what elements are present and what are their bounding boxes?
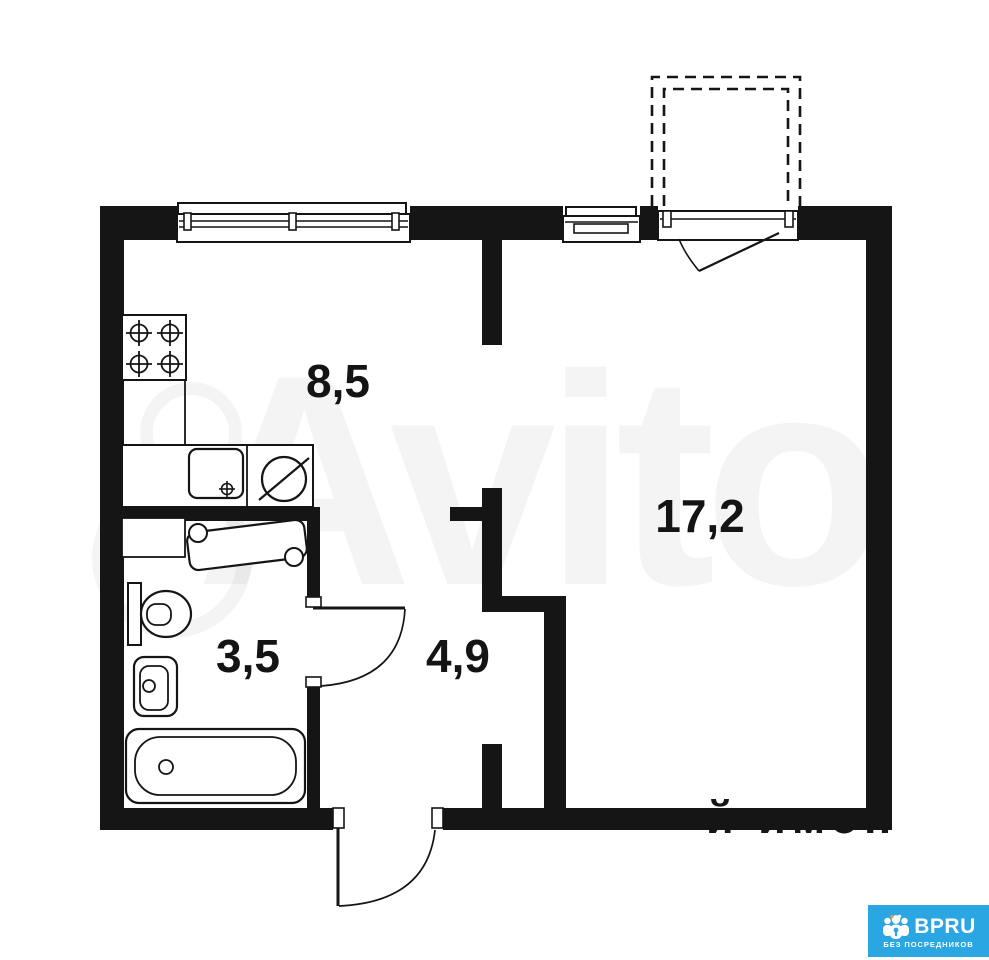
bpru-brand-text: BPRU — [914, 916, 976, 937]
people-lock-icon — [881, 914, 911, 940]
stove-icon — [122, 315, 186, 380]
bpru-logo-badge: BPRU БЕЗ ПОСРЕДНИКОВ — [868, 905, 989, 957]
floor-plan-canvas: Avito й имон — [0, 0, 989, 960]
wall-entry-stub — [482, 744, 502, 808]
kitchen-window-icon — [177, 203, 410, 242]
bathroom-door-icon — [306, 597, 405, 687]
bathtub-icon — [126, 729, 305, 803]
small-window-icon — [563, 207, 640, 242]
wall-hall-upper — [482, 488, 502, 600]
wall-bathroom-east-lower — [307, 687, 320, 808]
bathroom-area-label: 3,5 — [216, 629, 280, 683]
wall-bathroom-east-upper — [307, 507, 320, 597]
bathroom-cabinet — [122, 518, 185, 557]
balcony-dashed-outline — [652, 77, 800, 206]
hallway-area-label: 4,9 — [426, 629, 490, 683]
living-room-area-label: 17,2 — [655, 489, 745, 543]
wall-right — [866, 206, 892, 830]
wall-hall-lower — [544, 600, 566, 810]
bathroom-sink-icon — [134, 657, 177, 716]
washing-machine-icon — [186, 519, 308, 571]
kitchen-area-label: 8,5 — [306, 354, 370, 408]
wall-kitchen-partition — [482, 240, 502, 345]
wall-bottom — [100, 808, 892, 830]
wall-kitchen-south-tick — [450, 507, 482, 521]
balcony-door-icon — [658, 211, 798, 271]
kitchen-sink-icon — [189, 449, 243, 498]
toilet-icon — [128, 583, 191, 645]
floor-plan-drawing — [0, 0, 989, 960]
bpru-tagline-text: БЕЗ ПОСРЕДНИКОВ — [883, 941, 973, 949]
